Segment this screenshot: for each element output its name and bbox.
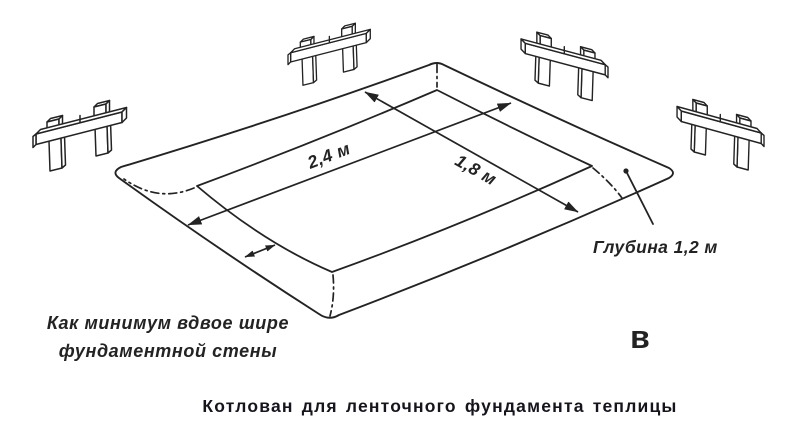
width-note-line2: фундаментной стены bbox=[59, 341, 277, 361]
dim-line-1-8 bbox=[365, 92, 578, 212]
depth-pointer-dot bbox=[623, 168, 628, 173]
figure-caption: Котлован для ленточного фундамента тепли… bbox=[202, 396, 677, 416]
batter-board-icon bbox=[288, 23, 370, 85]
pit-outer-rim bbox=[115, 63, 673, 318]
pit-bottom-edge bbox=[197, 90, 592, 272]
figure-part-letter: в bbox=[630, 319, 650, 355]
batter-board-icon bbox=[677, 100, 764, 171]
pit-corner-dashdot-left bbox=[124, 179, 194, 194]
width-note-line1: Как минимум вдвое шире bbox=[47, 313, 289, 333]
depth-label: Глубина 1,2 м bbox=[593, 237, 718, 257]
pit-corner-dashdot-bottom bbox=[330, 275, 334, 316]
figure-canvas: 2,4 м 1,8 м Глубина 1,2 м Как минимум вд… bbox=[0, 0, 800, 440]
depth-pointer-line bbox=[626, 171, 653, 224]
dim-label-1-8: 1,8 м bbox=[452, 150, 500, 189]
batter-board-icon bbox=[521, 32, 608, 100]
figure-illustration: 2,4 м 1,8 м Глубина 1,2 м Как минимум вд… bbox=[0, 0, 800, 440]
trench-width-arrow bbox=[245, 245, 275, 257]
batter-board-icon bbox=[33, 101, 127, 172]
pit-corner-dashdot-right bbox=[593, 168, 622, 198]
dim-label-2-4: 2,4 м bbox=[304, 138, 353, 173]
